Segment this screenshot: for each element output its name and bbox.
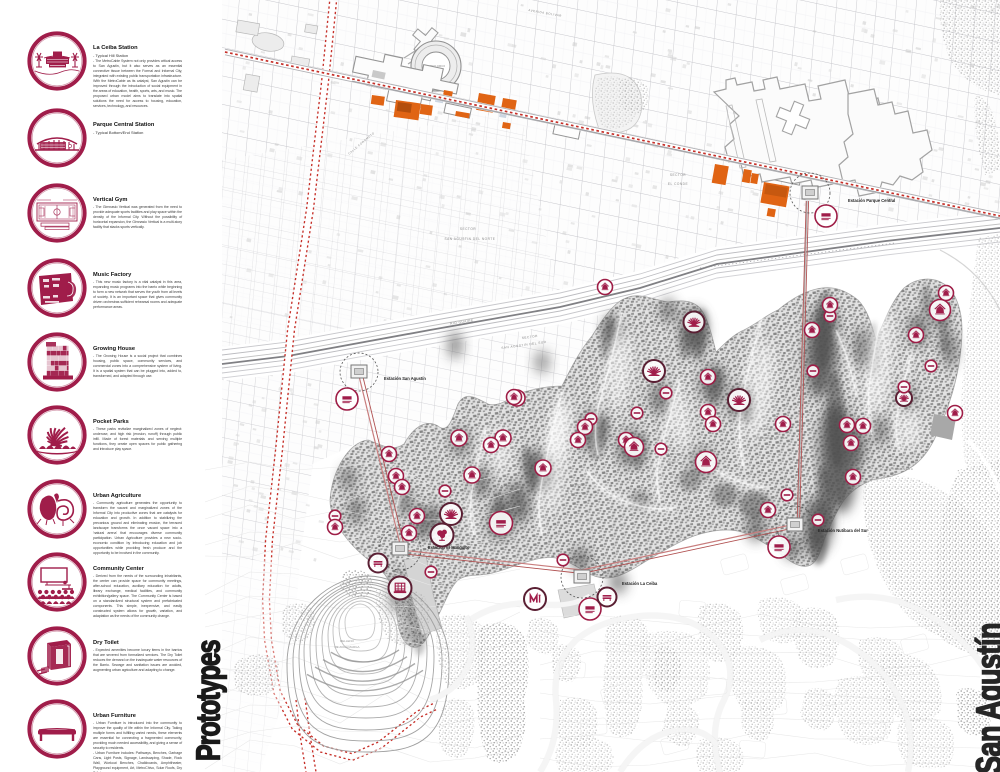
svg-text:DE AGUA MARGA: DE AGUA MARGA <box>334 645 359 649</box>
svg-text:MARIN: MARIN <box>666 460 678 464</box>
svg-text:EL MANGUITO: EL MANGUITO <box>493 492 519 496</box>
svg-text:BARRIO: BARRIO <box>570 483 585 487</box>
svg-text:Estación San Agustín: Estación San Agustín <box>384 376 426 381</box>
svg-text:BARRIO: BARRIO <box>927 335 942 339</box>
svg-text:Estación Parque Central: Estación Parque Central <box>848 198 895 203</box>
svg-text:LA CHARNECA: LA CHARNECA <box>887 467 914 471</box>
svg-text:HORNOS DE CAL: HORNOS DE CAL <box>756 436 787 440</box>
svg-text:BARRIO: BARRIO <box>665 452 680 456</box>
svg-text:SECTOR: SECTOR <box>460 227 476 231</box>
svg-text:Estación Nutibara del Sur: Estación Nutibara del Sur <box>818 528 868 533</box>
svg-text:Estación La Ceiba: Estación La Ceiba <box>622 581 658 586</box>
svg-text:Estación El Manguito: Estación El Manguito <box>428 545 470 550</box>
svg-text:BARRIO: BARRIO <box>761 427 776 431</box>
svg-text:SECTOR: SECTOR <box>670 173 686 177</box>
svg-text:BARRIO: BARRIO <box>501 484 516 488</box>
svg-text:LA CEIBA: LA CEIBA <box>568 491 585 495</box>
svg-text:SAN AGUSTIN DEL NORTE: SAN AGUSTIN DEL NORTE <box>445 237 496 241</box>
svg-text:RELLENO: RELLENO <box>340 639 355 643</box>
svg-text:LA CHARNECA: LA CHARNECA <box>925 345 952 349</box>
svg-text:EL CONDE: EL CONDE <box>668 182 688 186</box>
